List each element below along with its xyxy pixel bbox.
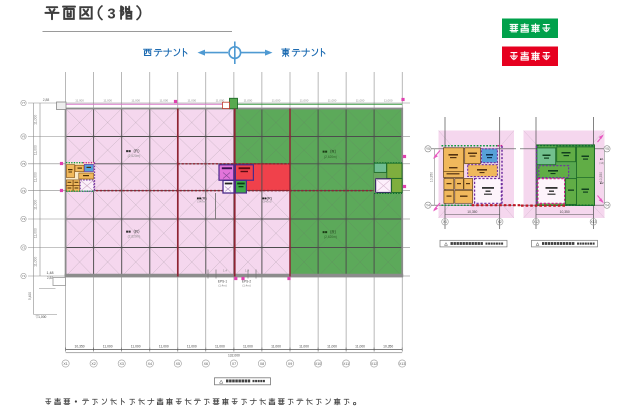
svg-text:11,000: 11,000 <box>131 99 140 103</box>
svg-text:■2: ■2 <box>600 181 604 185</box>
svg-text:X1: X1 <box>443 220 447 224</box>
svg-text:11,000: 11,000 <box>215 344 225 348</box>
svg-text:11,000: 11,000 <box>356 99 365 103</box>
svg-text:1,48: 1,48 <box>47 271 54 275</box>
svg-text:■■（R）: ■■（R） <box>126 229 142 234</box>
svg-text:5,400: 5,400 <box>28 292 32 300</box>
svg-text:1,4: 1,4 <box>245 269 250 273</box>
svg-text:11,000: 11,000 <box>34 172 38 182</box>
svg-text:X1: X1 <box>63 362 67 366</box>
svg-text:11,000: 11,000 <box>159 344 169 348</box>
svg-text:■■（R）: ■■（R） <box>322 149 338 154</box>
svg-text:10,350: 10,350 <box>383 344 393 348</box>
svg-text:11,000: 11,000 <box>187 99 196 103</box>
svg-text:11,000: 11,000 <box>299 344 309 348</box>
svg-text:▽1,000: ▽1,000 <box>36 315 47 319</box>
svg-text:X2: X2 <box>91 362 95 366</box>
svg-text:■■（R）: ■■（R） <box>322 230 338 235</box>
svg-text:Y4: Y4 <box>426 204 430 208</box>
svg-text:11,000: 11,000 <box>34 257 38 267</box>
svg-text:(340m): (340m) <box>263 200 272 204</box>
svg-text:132,000: 132,000 <box>228 354 240 358</box>
svg-text:■■（R）: ■■（R） <box>126 149 142 154</box>
svg-text:11,000: 11,000 <box>34 115 38 125</box>
svg-text:10,350: 10,350 <box>560 210 570 214</box>
svg-text:Y4: Y4 <box>605 204 609 208</box>
svg-text:3: 3 <box>107 7 115 23</box>
svg-text:11,000: 11,000 <box>328 99 337 103</box>
svg-text:(2,620m): (2,620m) <box>324 155 337 159</box>
svg-text:11,000: 11,000 <box>300 99 309 103</box>
svg-text:Y7: Y7 <box>22 101 26 105</box>
svg-text:1,4: 1,4 <box>223 269 228 273</box>
svg-text:Y1: Y1 <box>22 274 26 278</box>
svg-text:11,000: 11,000 <box>34 200 38 210</box>
svg-text:11,000: 11,000 <box>271 344 281 348</box>
svg-text:(2,620m): (2,620m) <box>128 154 141 158</box>
svg-text:Y5: Y5 <box>426 147 430 151</box>
svg-text:Y2: Y2 <box>22 246 26 250</box>
svg-text:(340m): (340m) <box>197 200 206 204</box>
svg-text:X12: X12 <box>371 362 377 366</box>
svg-text:(1.4m): (1.4m) <box>242 284 250 288</box>
svg-text:10,350: 10,350 <box>467 210 477 214</box>
svg-text:X13: X13 <box>590 220 596 224</box>
svg-text:2,88: 2,88 <box>43 98 50 102</box>
svg-text:11,000: 11,000 <box>34 228 38 238</box>
svg-text:11,000: 11,000 <box>216 99 225 103</box>
svg-text:(14): (14) <box>599 161 604 165</box>
svg-text:X11: X11 <box>343 362 349 366</box>
svg-text:2,88: 2,88 <box>47 276 53 280</box>
svg-text:X3: X3 <box>119 362 123 366</box>
svg-text:11,000: 11,000 <box>159 99 168 103</box>
svg-text:X7: X7 <box>232 362 236 366</box>
svg-text:11,000: 11,000 <box>75 99 84 103</box>
svg-text:X9: X9 <box>288 362 292 366</box>
svg-text:Y5: Y5 <box>22 162 26 166</box>
svg-text:11,000: 11,000 <box>187 344 197 348</box>
svg-text:11,000: 11,000 <box>243 344 253 348</box>
svg-text:X12: X12 <box>533 220 539 224</box>
svg-text:X13: X13 <box>399 362 405 366</box>
svg-text:11,000: 11,000 <box>103 344 113 348</box>
svg-text:10,350: 10,350 <box>429 172 433 182</box>
svg-text:X10: X10 <box>315 362 321 366</box>
svg-text:10,350: 10,350 <box>75 344 85 348</box>
svg-text:11,000: 11,000 <box>131 344 141 348</box>
svg-text:Y5: Y5 <box>605 147 609 151</box>
svg-text:X4: X4 <box>148 362 152 366</box>
svg-text:11,000: 11,000 <box>355 344 365 348</box>
svg-text:(2,620m): (2,620m) <box>324 235 337 239</box>
svg-text:Y3: Y3 <box>22 217 26 221</box>
svg-text:X2: X2 <box>498 220 502 224</box>
svg-text:11,000: 11,000 <box>244 99 253 103</box>
svg-text:Y6: Y6 <box>22 135 26 139</box>
svg-text:X8: X8 <box>260 362 264 366</box>
svg-text:11,000: 11,000 <box>34 145 38 155</box>
svg-text:11,000: 11,000 <box>103 99 112 103</box>
svg-text:11,000: 11,000 <box>272 99 281 103</box>
svg-text:(1.4m): (1.4m) <box>218 284 226 288</box>
svg-text:11,000: 11,000 <box>384 99 393 103</box>
svg-text:(2,620m): (2,620m) <box>128 235 141 239</box>
svg-text:11,000: 11,000 <box>327 344 337 348</box>
svg-text:X6: X6 <box>204 362 208 366</box>
svg-text:X5: X5 <box>176 362 180 366</box>
svg-text:Y4: Y4 <box>22 189 26 193</box>
